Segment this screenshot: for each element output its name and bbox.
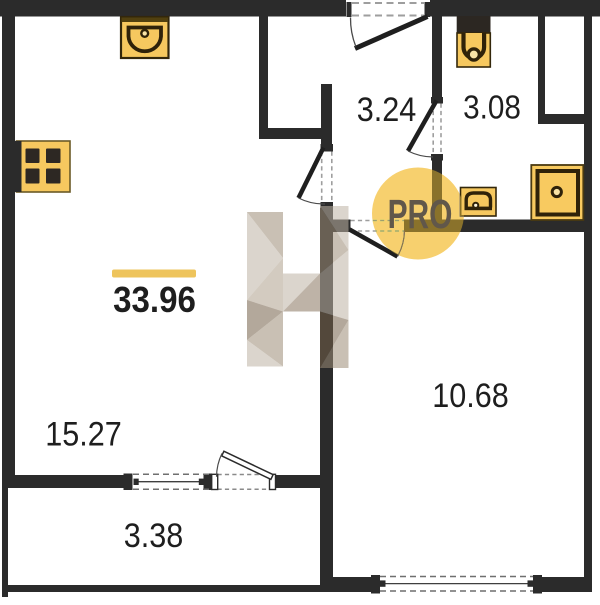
svg-text:3.08: 3.08 xyxy=(463,89,521,126)
svg-text:PRO: PRO xyxy=(388,191,453,237)
svg-text:3.38: 3.38 xyxy=(124,517,184,555)
svg-text:10.68: 10.68 xyxy=(432,377,509,415)
svg-text:3.24: 3.24 xyxy=(357,91,417,129)
svg-text:15.27: 15.27 xyxy=(45,415,122,453)
svg-text:33.96: 33.96 xyxy=(113,281,196,321)
